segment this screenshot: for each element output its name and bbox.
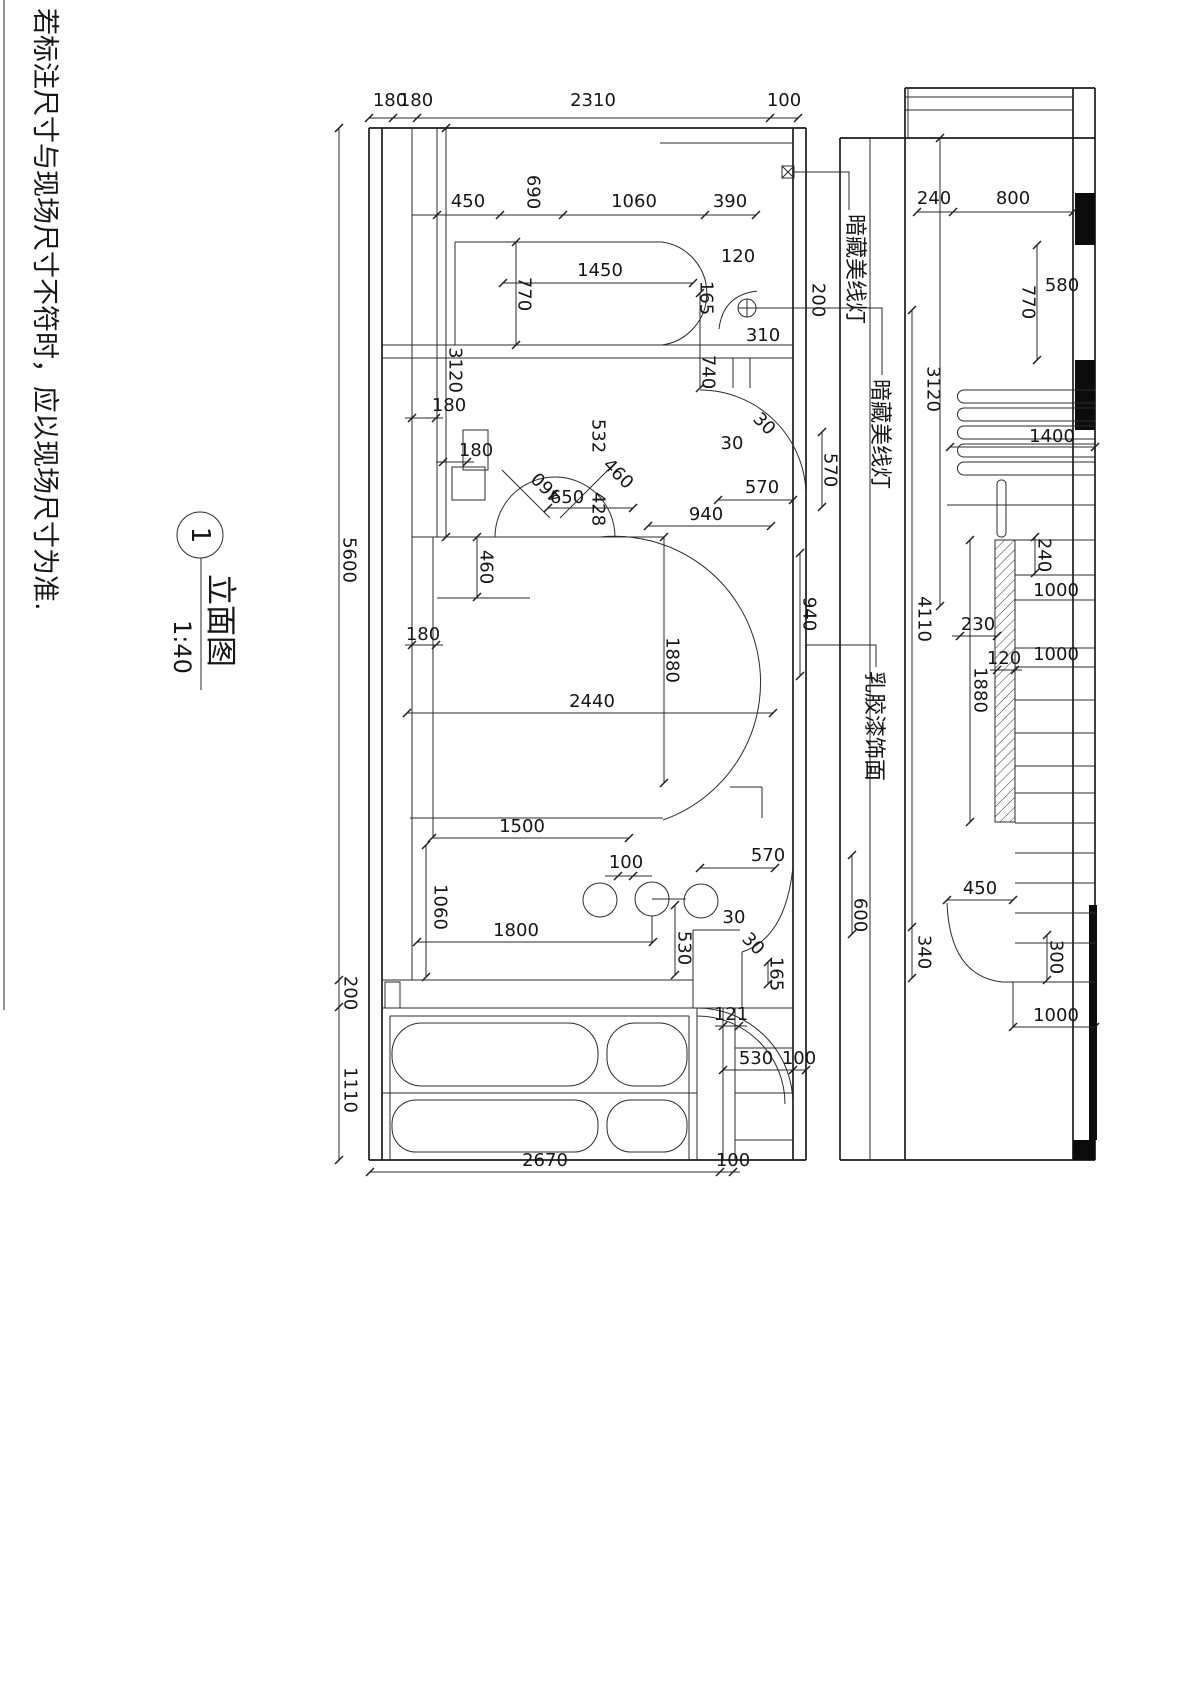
dim-label: 532 [588, 419, 609, 453]
dim-label: 2670 [522, 1150, 568, 1171]
dim-label: 428 [588, 492, 609, 526]
dim-label: 1000 [1033, 580, 1079, 601]
dim-label: 240 [917, 188, 951, 209]
dim-label: 121 [714, 1004, 748, 1025]
dim-label: 450 [451, 191, 485, 212]
dim-label: 5600 [339, 537, 360, 583]
dim-label: 450 [963, 878, 997, 899]
dim-label: 100 [782, 1048, 816, 1069]
hatched-panel [995, 540, 1015, 822]
right-section: 240 800 770 580 3120 1400 240 1000 1000 … [840, 88, 1099, 1160]
wall-niche [385, 982, 400, 1008]
dim-label: 940 [799, 597, 820, 631]
dim-label: 940 [689, 504, 723, 525]
black-fill-bar [1089, 905, 1097, 1140]
arch-detail-block-2 [452, 467, 485, 500]
dim-label: 570 [820, 453, 841, 487]
dim-label: 460 [598, 454, 637, 493]
dim-label: 1060 [611, 191, 657, 212]
base-curve [947, 903, 1002, 982]
title-block: 1 立面图 1:40 [168, 512, 238, 690]
dim-label: 600 [850, 898, 871, 932]
label-latex-paint: 乳胶漆饰面 [861, 671, 886, 781]
dim-label: 530 [739, 1048, 773, 1069]
dim-label: 165 [696, 281, 717, 315]
bed-cushion [392, 1023, 598, 1086]
dim-label: 690 [523, 175, 544, 209]
dim-label: 30 [748, 408, 779, 439]
dim-label: 180 [432, 395, 466, 416]
left-elevation: 180 180 2310 100 450 690 1060 390 1450 7… [335, 90, 871, 1176]
dim-label: 570 [751, 845, 785, 866]
dim-label: 180 [459, 440, 493, 461]
site-note: 若标注尺寸与现场尺寸不符时，应以现场尺寸为准. [29, 8, 60, 611]
dim-label: 1450 [577, 260, 623, 281]
label-cove-light-2: 暗藏美线灯 [867, 379, 892, 489]
dim-label: 200 [340, 976, 361, 1010]
bed-outline [382, 1008, 697, 1160]
dim-label: 2310 [570, 90, 616, 111]
dim-label: 240 [1034, 538, 1055, 572]
dim-label: 1400 [1029, 426, 1075, 447]
dim-label: 1060 [430, 884, 451, 930]
dim-label: 570 [745, 477, 779, 498]
dim-label: 1880 [970, 667, 991, 713]
bed-cushion [392, 1100, 598, 1152]
dim-label: 180 [399, 90, 433, 111]
dim-label: 300 [1046, 940, 1067, 974]
dim-label: 1500 [499, 816, 545, 837]
dim-label: 580 [1045, 275, 1079, 296]
dim-label: 460 [476, 550, 497, 584]
dim-label: 100 [609, 852, 643, 873]
dim-label: 180 [406, 624, 440, 645]
dim-label: 770 [514, 277, 535, 311]
dim-label: 2440 [569, 691, 615, 712]
headboard-panel [455, 242, 707, 345]
dim-label: 390 [713, 191, 747, 212]
dim-label: 30 [721, 433, 744, 454]
dim-label: 650 [550, 487, 584, 508]
label-cove-light-1: 暗藏美线灯 [842, 214, 867, 324]
hanger-rod [997, 480, 1006, 537]
black-fill [1075, 360, 1095, 430]
dim-label: 200 [808, 283, 829, 317]
dim-label: 30 [723, 907, 746, 928]
dim-label: 310 [746, 325, 780, 346]
dim-label: 3120 [445, 347, 466, 393]
drawing-scale: 1:40 [168, 620, 196, 674]
dim-label: 100 [767, 90, 801, 111]
dim-label: 1000 [1033, 644, 1079, 665]
dim-label: 340 [914, 935, 935, 969]
dim-label: 165 [766, 957, 787, 991]
dim-label: 1880 [662, 637, 683, 683]
dim-label: 100 [716, 1150, 750, 1171]
black-fill [1075, 193, 1095, 245]
dim-label: 800 [996, 188, 1030, 209]
dim-label: 530 [674, 931, 695, 965]
dim-label: 1110 [340, 1067, 361, 1113]
drawing-title: 立面图 [202, 574, 238, 667]
dim-label: 770 [1018, 285, 1039, 319]
dim-label: 4110 [914, 596, 935, 642]
elevation-cad-drawing: 180 180 2310 100 450 690 1060 390 1450 7… [0, 0, 1200, 1698]
bed-pillow [607, 1100, 687, 1152]
dim-label: 1800 [493, 920, 539, 941]
dim-label: 740 [698, 355, 719, 389]
downlight-icon [583, 883, 617, 917]
detail-number: 1 [185, 527, 215, 544]
dim-label: 230 [961, 614, 995, 635]
dim-label: 3120 [923, 366, 944, 412]
dim-label: 1000 [1033, 1005, 1079, 1026]
black-fill-base [1073, 1140, 1095, 1160]
dim-label: 120 [987, 648, 1021, 669]
drawing-sheet: 180 180 2310 100 450 690 1060 390 1450 7… [0, 0, 1200, 1698]
site-note-text: 若标注尺寸与现场尺寸不符时，应以现场尺寸为准. [29, 8, 60, 611]
dim-label: 120 [721, 246, 755, 267]
bed-pillow [607, 1023, 687, 1086]
downlight-icon [684, 884, 718, 918]
